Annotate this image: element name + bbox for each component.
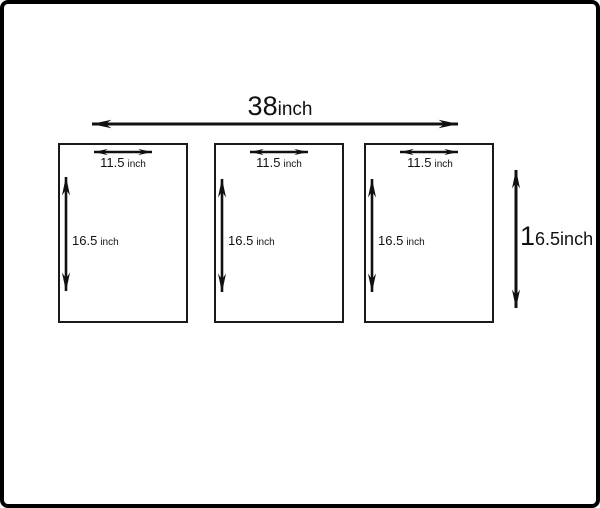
panel-2-height-label: 16.5inch xyxy=(228,234,275,250)
panel-1-width-unit: inch xyxy=(127,159,145,170)
wall-panels-dimension-diagram: 38inch 11.5inch 11.5inch 11.5inch 16.5in… xyxy=(0,0,600,508)
right-height-value-rest: 6.5inch xyxy=(535,229,593,249)
panel-3-width-value: 11.5 xyxy=(407,155,431,170)
panel-1-height-value: 16.5 xyxy=(72,233,97,248)
panel-2-width-unit: inch xyxy=(283,159,301,170)
panel-2-height-unit: inch xyxy=(256,237,274,248)
panel-3-width-unit: inch xyxy=(434,159,452,170)
total-width-value: 38 xyxy=(248,91,278,121)
panel-1-height-label: 16.5inch xyxy=(72,234,119,250)
panel-1-width-value: 11.5 xyxy=(100,155,124,170)
panel-2-height-value: 16.5 xyxy=(228,233,253,248)
right-height-label: 16.5inch xyxy=(520,221,593,256)
panel-2-width-label: 11.5inch xyxy=(234,156,324,172)
panel-2-width-value: 11.5 xyxy=(256,155,280,170)
dimension-arrows xyxy=(0,0,600,508)
total-width-label: 38inch xyxy=(180,92,380,125)
panel-3-height-unit: inch xyxy=(406,237,424,248)
panel-1-height-unit: inch xyxy=(100,237,118,248)
panel-3-height-value: 16.5 xyxy=(378,233,403,248)
panel-3-height-label: 16.5inch xyxy=(378,234,425,250)
panel-3-width-label: 11.5inch xyxy=(385,156,475,172)
total-width-unit: inch xyxy=(278,99,313,120)
right-height-value-lead: 1 xyxy=(520,221,535,251)
panel-1-width-label: 11.5inch xyxy=(78,156,168,172)
